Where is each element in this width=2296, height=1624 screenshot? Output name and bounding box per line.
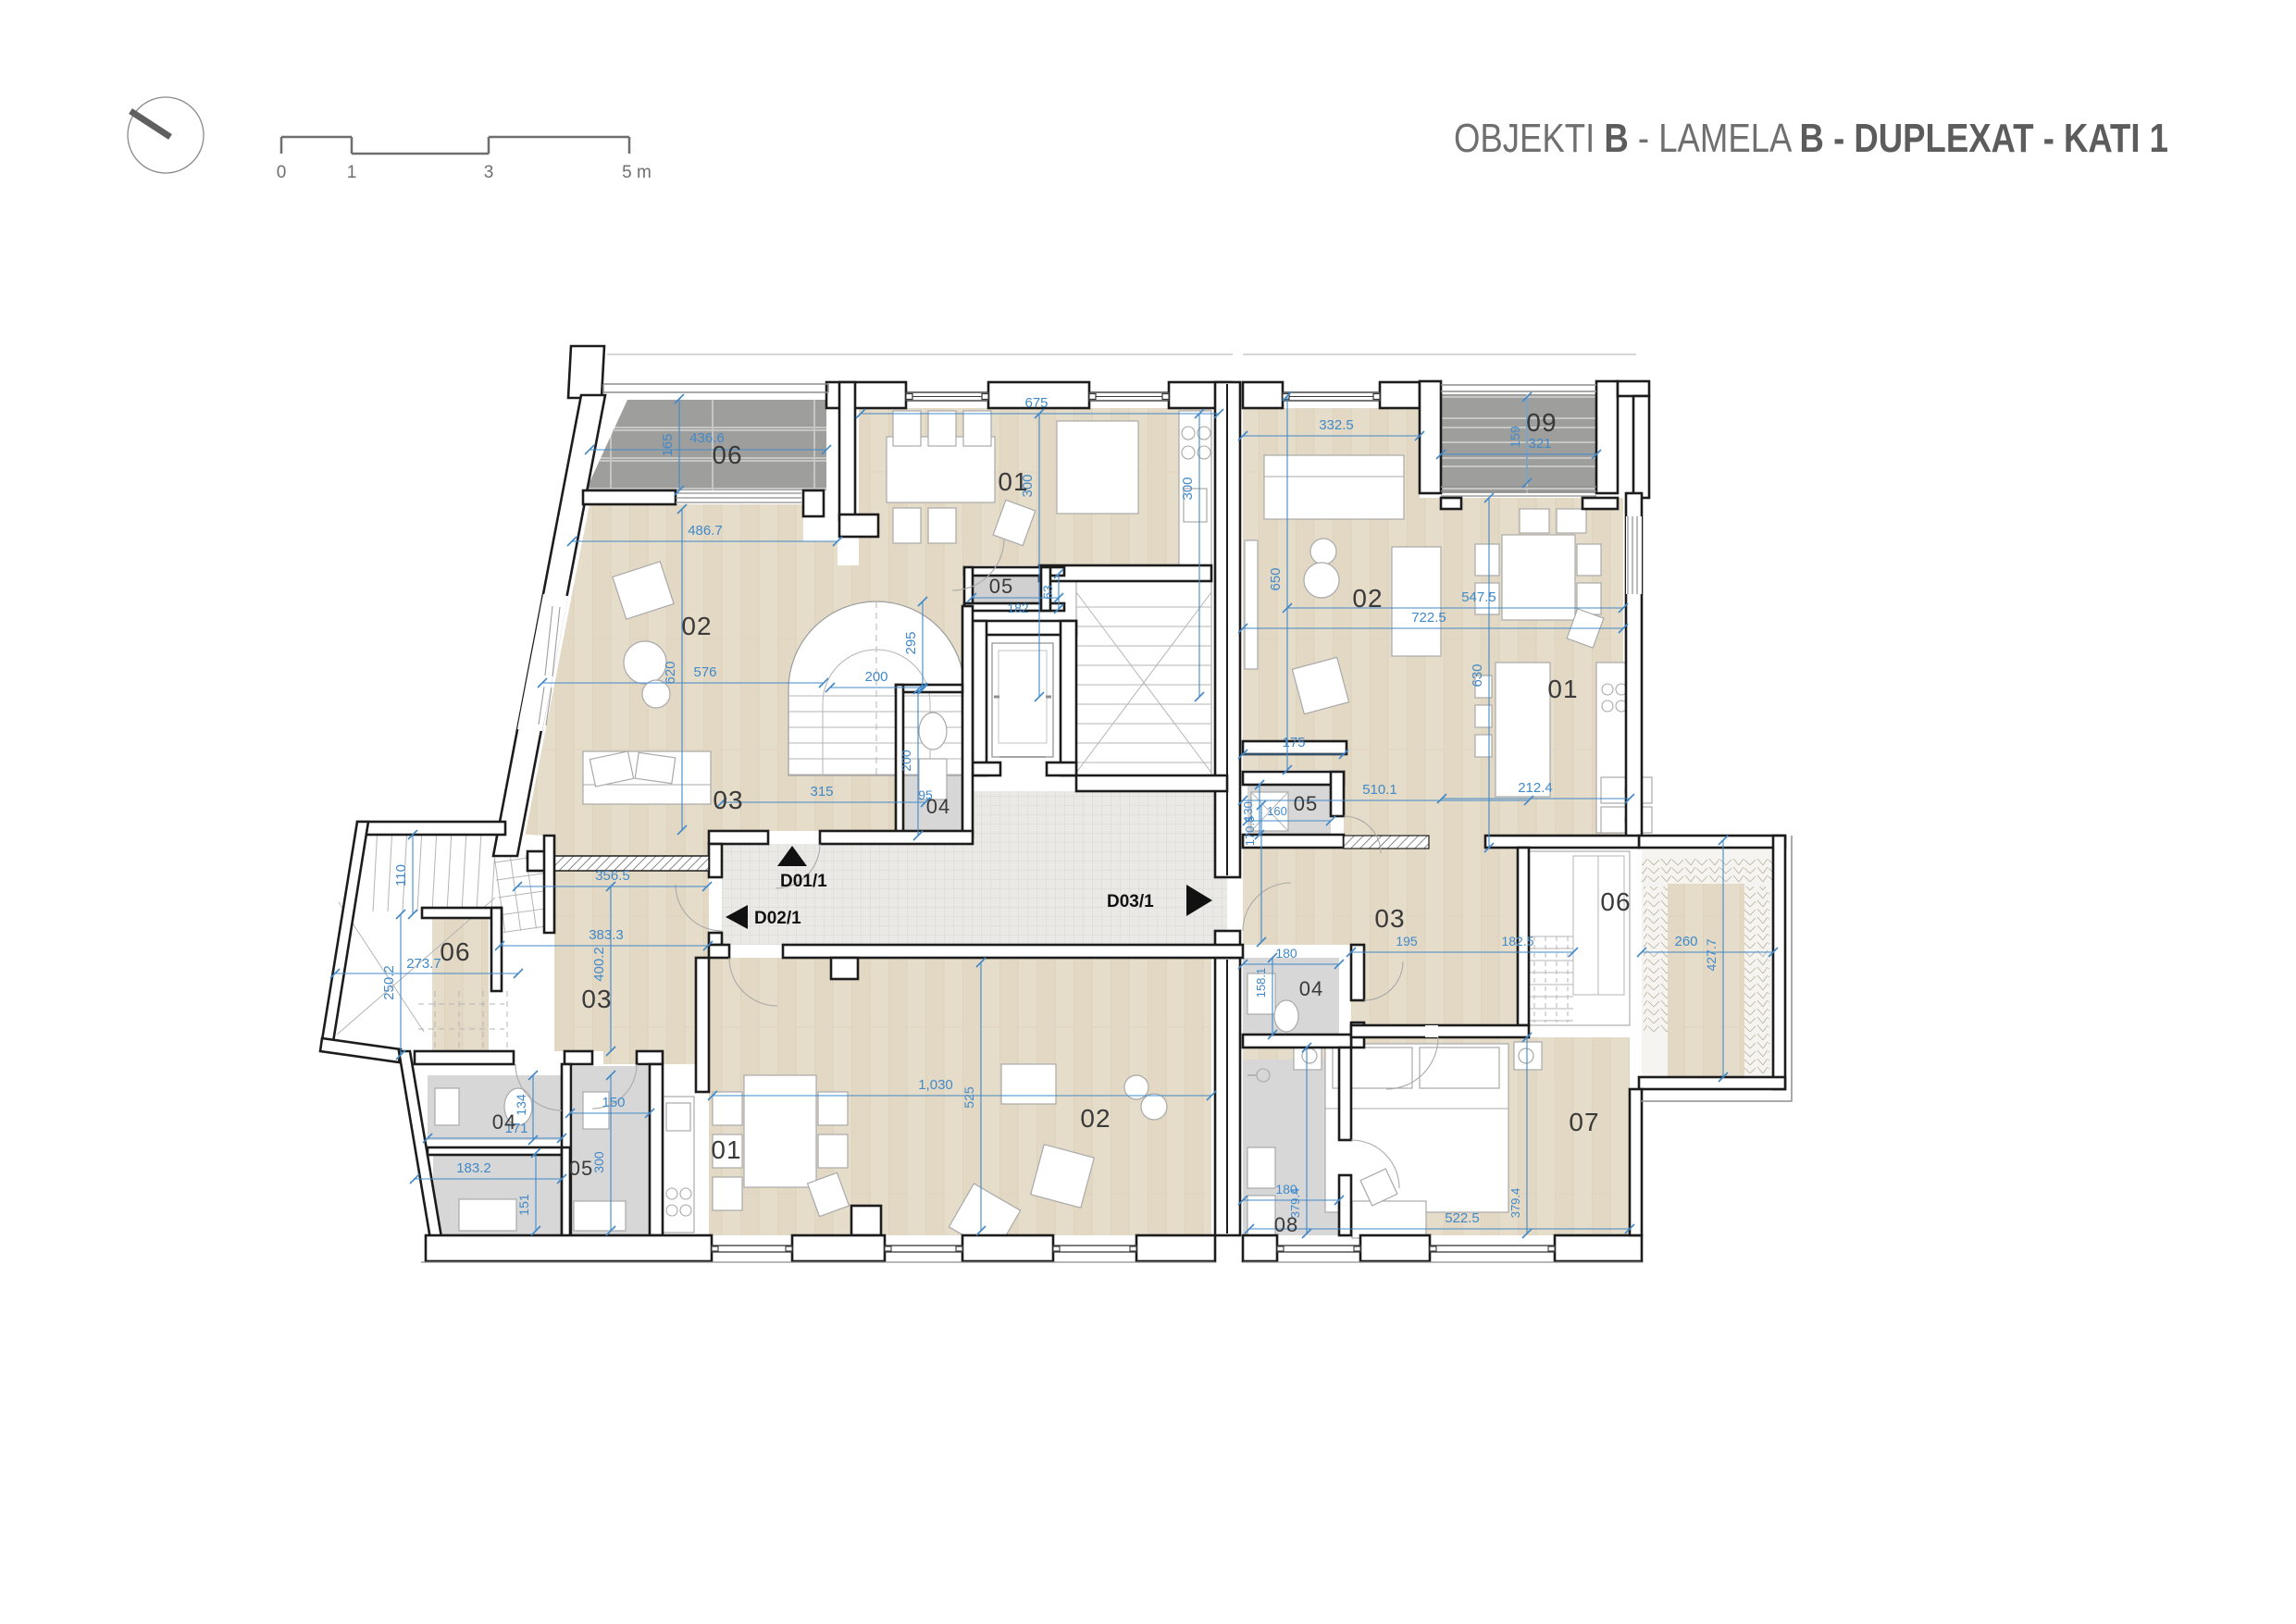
svg-text:722.5: 722.5 <box>1411 610 1446 626</box>
svg-text:356.5: 356.5 <box>595 868 630 884</box>
svg-text:02: 02 <box>1080 1104 1111 1133</box>
svg-text:300: 300 <box>1180 477 1196 500</box>
svg-text:D02/1: D02/1 <box>754 909 801 928</box>
svg-text:522.5: 522.5 <box>1445 1210 1480 1226</box>
svg-text:06: 06 <box>440 937 470 966</box>
svg-text:321: 321 <box>1528 436 1551 452</box>
svg-text:08: 08 <box>1274 1213 1298 1236</box>
svg-text:332.5: 332.5 <box>1319 417 1354 433</box>
svg-text:OBJEKTI B - LAMELA B - DUPLEXA: OBJEKTI B - LAMELA B - DUPLEXAT - KATI 1 <box>1454 116 2168 161</box>
svg-text:383.3: 383.3 <box>589 927 624 943</box>
svg-text:525: 525 <box>962 1086 976 1109</box>
svg-text:110: 110 <box>393 864 409 886</box>
svg-text:150: 150 <box>602 1095 625 1110</box>
svg-text:250.2: 250.2 <box>381 965 397 1000</box>
svg-text:01: 01 <box>998 467 1028 496</box>
svg-text:650: 650 <box>1268 567 1284 590</box>
svg-text:06: 06 <box>1600 887 1631 916</box>
svg-text:159: 159 <box>1508 426 1522 448</box>
svg-text:03: 03 <box>581 985 612 1013</box>
svg-text:183.2: 183.2 <box>456 1160 491 1176</box>
svg-text:182.5: 182.5 <box>1501 934 1533 948</box>
svg-text:D01/1: D01/1 <box>780 872 827 891</box>
svg-text:3: 3 <box>484 163 494 182</box>
svg-text:175: 175 <box>1282 735 1305 750</box>
svg-text:02: 02 <box>1352 584 1383 613</box>
svg-text:427.7: 427.7 <box>1704 938 1719 971</box>
svg-text:03: 03 <box>1374 904 1405 933</box>
svg-text:200: 200 <box>899 750 913 772</box>
svg-text:315: 315 <box>810 784 833 800</box>
svg-text:180: 180 <box>1275 946 1297 961</box>
svg-text:04: 04 <box>926 795 950 818</box>
svg-text:D03/1: D03/1 <box>1107 892 1154 911</box>
svg-text:295: 295 <box>903 631 919 654</box>
svg-text:576: 576 <box>693 664 716 680</box>
svg-text:182: 182 <box>1007 601 1029 615</box>
svg-text:195: 195 <box>1396 934 1418 948</box>
svg-text:63: 63 <box>1040 585 1055 600</box>
svg-text:03: 03 <box>713 786 743 814</box>
svg-text:212.4: 212.4 <box>1518 780 1553 796</box>
svg-text:273.7: 273.7 <box>406 956 441 972</box>
svg-text:1,030: 1,030 <box>918 1077 953 1093</box>
svg-text:151: 151 <box>516 1194 531 1216</box>
svg-text:04: 04 <box>492 1110 516 1134</box>
svg-text:09: 09 <box>1526 408 1557 437</box>
svg-text:05: 05 <box>1294 792 1318 815</box>
svg-text:05: 05 <box>569 1157 593 1180</box>
svg-text:400.2: 400.2 <box>591 947 607 982</box>
svg-text:5 m: 5 m <box>622 163 652 182</box>
svg-text:620: 620 <box>663 661 678 684</box>
svg-text:630: 630 <box>1470 663 1485 687</box>
svg-text:675: 675 <box>1024 395 1048 411</box>
svg-text:379.4: 379.4 <box>1508 1188 1522 1219</box>
svg-text:300: 300 <box>591 1151 606 1173</box>
svg-text:160: 160 <box>1267 804 1287 818</box>
svg-text:200: 200 <box>864 669 887 685</box>
svg-text:0: 0 <box>277 163 287 182</box>
svg-text:05: 05 <box>989 575 1013 598</box>
svg-text:547.5: 547.5 <box>1461 589 1496 605</box>
svg-text:165: 165 <box>660 433 676 456</box>
svg-text:170.5: 170.5 <box>1243 816 1257 847</box>
svg-text:486.7: 486.7 <box>688 523 723 539</box>
svg-text:01: 01 <box>711 1135 741 1164</box>
svg-text:06: 06 <box>712 440 742 469</box>
svg-text:158.1: 158.1 <box>1254 968 1268 998</box>
svg-text:01: 01 <box>1547 675 1578 703</box>
svg-text:07: 07 <box>1569 1108 1599 1136</box>
svg-text:260: 260 <box>1674 934 1697 949</box>
svg-text:02: 02 <box>681 612 712 640</box>
svg-text:1: 1 <box>347 163 357 182</box>
svg-text:510.1: 510.1 <box>1362 782 1397 798</box>
svg-text:04: 04 <box>1299 977 1323 1000</box>
